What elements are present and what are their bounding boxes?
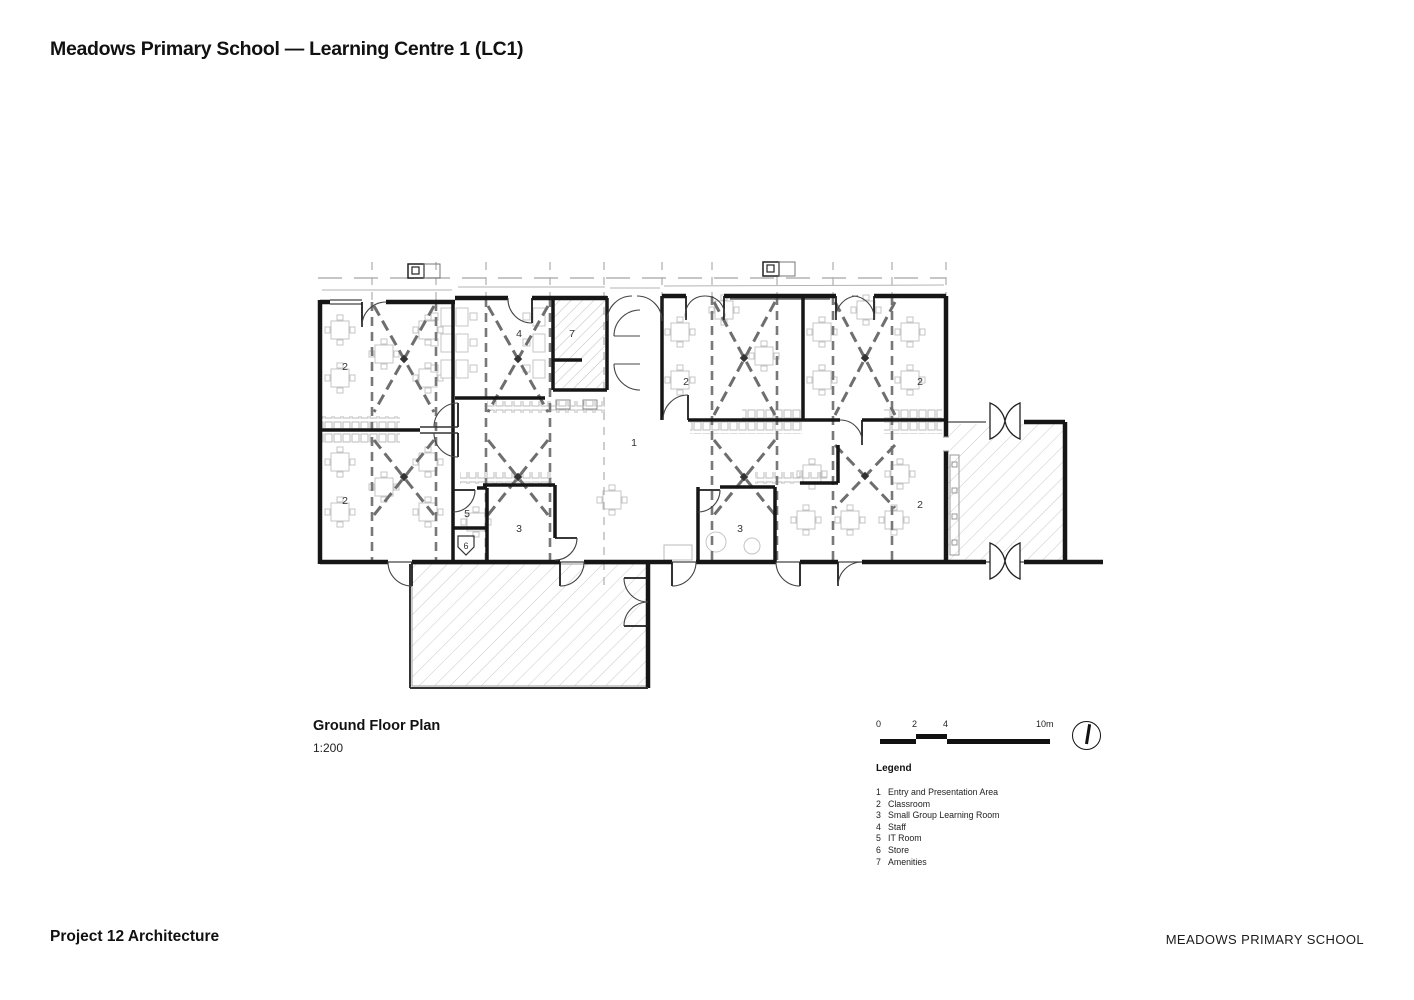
room-label: 3 — [737, 523, 743, 535]
hatch-areas — [412, 300, 1063, 686]
legend-item: 3 Small Group Learning Room — [876, 810, 999, 822]
architect-name: Project 12 Architecture — [50, 928, 219, 946]
room-label: 6 — [463, 541, 468, 551]
legend-item: 1 Entry and Presentation Area — [876, 787, 999, 799]
room-label: 2 — [342, 361, 348, 373]
scale-bar-segment — [916, 734, 947, 739]
scale-bar-segment — [947, 739, 1050, 744]
floor-plan: 2 2 4 7 2 2 1 5 6 3 3 2 — [300, 256, 1110, 701]
scale-tick-0: 0 — [876, 719, 881, 729]
project-name: MEADOWS PRIMARY SCHOOL — [1166, 932, 1364, 947]
scale-tick-10: 10m — [1036, 719, 1054, 729]
legend-item: 7 Amenities — [876, 857, 999, 869]
legend-item: 6 Store — [876, 845, 999, 857]
room-label: 7 — [569, 328, 575, 340]
legend-list: 1 Entry and Presentation Area 2 Classroo… — [876, 787, 999, 868]
legend-item: 4 Staff — [876, 822, 999, 834]
room-label: 2 — [917, 376, 923, 388]
furniture — [322, 295, 942, 560]
legend: Legend 1 Entry and Presentation Area 2 C… — [876, 763, 999, 868]
legend-item: 5 IT Room — [876, 833, 999, 845]
north-arrow-icon — [1072, 721, 1101, 750]
room-label: 4 — [516, 328, 522, 340]
room-label: 5 — [464, 508, 470, 520]
room-label: 1 — [631, 437, 637, 449]
legend-heading: Legend — [876, 763, 999, 774]
scale-bar-segment — [880, 739, 916, 744]
roof-drain-symbol — [408, 262, 795, 278]
drawing-caption: Ground Floor Plan 1:200 — [313, 718, 440, 755]
scale-tick-4: 4 — [943, 719, 948, 729]
room-label: 2 — [917, 499, 923, 511]
room-label: 2 — [342, 495, 348, 507]
drawing-scale: 1:200 — [313, 741, 440, 755]
legend-item: 2 Classroom — [876, 799, 999, 811]
room-label: 2 — [683, 376, 689, 388]
drawing-title: Ground Floor Plan — [313, 718, 440, 734]
room-label: 3 — [516, 523, 522, 535]
north-needle-icon — [1085, 724, 1091, 744]
sheet-title: Meadows Primary School — Learning Centre… — [50, 38, 523, 61]
scale-tick-2: 2 — [912, 719, 917, 729]
scale-bar: 0 2 4 10m — [876, 719, 1056, 749]
drawing-sheet: Meadows Primary School — Learning Centre… — [0, 0, 1414, 1000]
